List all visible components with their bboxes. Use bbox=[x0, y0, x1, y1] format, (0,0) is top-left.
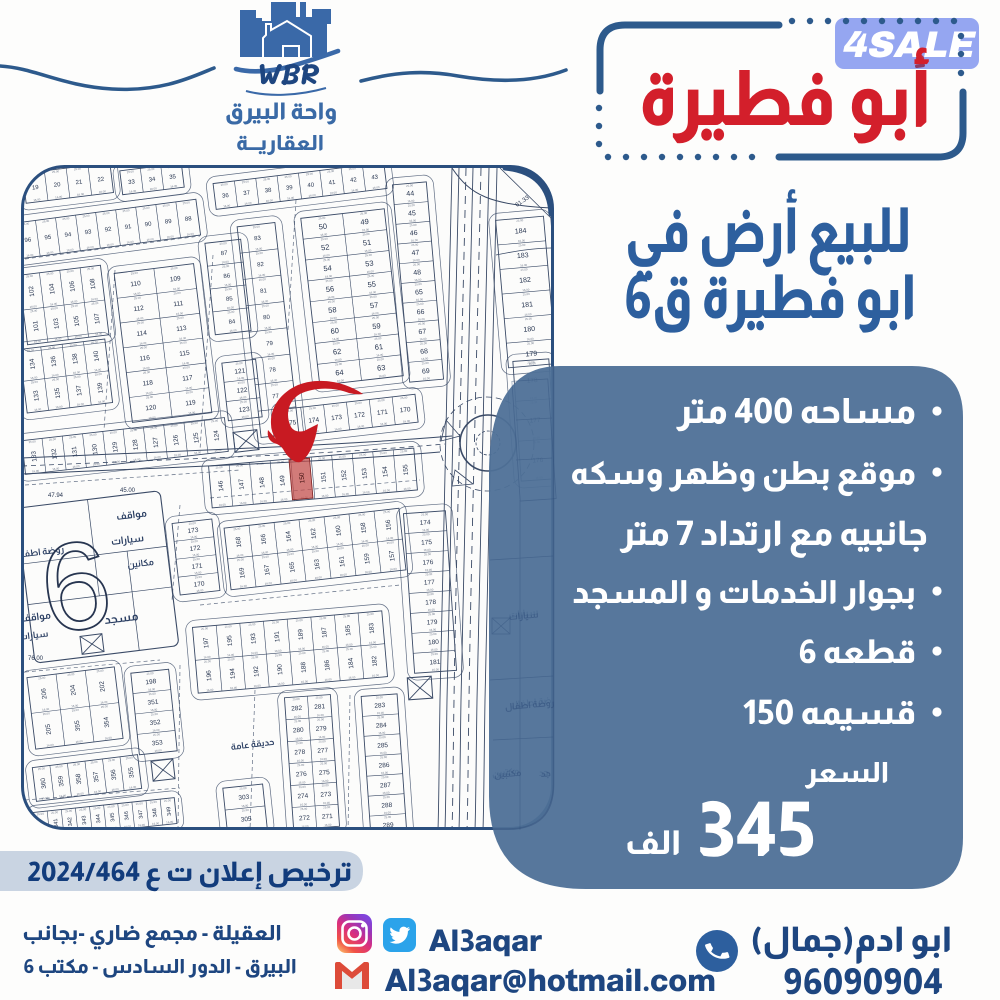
svg-text:16.00: 16.00 bbox=[348, 675, 356, 680]
svg-text:173: 173 bbox=[331, 414, 343, 422]
svg-text:25.00: 25.00 bbox=[523, 292, 531, 297]
svg-text:25.00: 25.00 bbox=[377, 398, 385, 403]
svg-text:25.00: 25.00 bbox=[323, 805, 331, 810]
svg-text:303: 303 bbox=[238, 794, 250, 802]
svg-text:16.00: 16.00 bbox=[403, 419, 411, 424]
svg-text:184: 184 bbox=[515, 228, 527, 236]
svg-text:25.00: 25.00 bbox=[374, 336, 382, 341]
svg-text:25.00: 25.00 bbox=[201, 626, 209, 631]
svg-text:25.00: 25.00 bbox=[287, 552, 295, 557]
svg-text:105: 105 bbox=[73, 315, 81, 327]
svg-text:205: 205 bbox=[45, 723, 53, 735]
svg-text:25.00: 25.00 bbox=[359, 452, 367, 457]
svg-text:103: 103 bbox=[53, 317, 61, 329]
svg-text:25.00: 25.00 bbox=[332, 341, 340, 346]
svg-text:134: 134 bbox=[29, 358, 37, 370]
svg-text:25.00: 25.00 bbox=[233, 526, 241, 531]
svg-text:155: 155 bbox=[402, 464, 410, 476]
svg-text:276: 276 bbox=[296, 771, 308, 779]
svg-text:195: 195 bbox=[226, 635, 234, 647]
svg-text:179: 179 bbox=[426, 619, 438, 627]
svg-text:192: 192 bbox=[253, 665, 261, 677]
svg-text:25.00: 25.00 bbox=[237, 380, 245, 385]
svg-text:25.00: 25.00 bbox=[49, 437, 57, 442]
svg-text:49: 49 bbox=[360, 217, 369, 227]
svg-text:149: 149 bbox=[279, 475, 287, 487]
svg-text:160: 160 bbox=[335, 525, 343, 537]
svg-text:25.00: 25.00 bbox=[153, 732, 161, 737]
svg-text:25.00: 25.00 bbox=[258, 524, 266, 529]
svg-text:25.00: 25.00 bbox=[130, 428, 138, 433]
svg-text:132: 132 bbox=[51, 448, 59, 460]
svg-text:117: 117 bbox=[182, 374, 194, 382]
svg-text:25.00: 25.00 bbox=[362, 543, 370, 548]
svg-text:16.00: 16.00 bbox=[423, 376, 431, 381]
svg-text:25.00: 25.00 bbox=[271, 382, 279, 387]
svg-text:16.00: 16.00 bbox=[32, 469, 40, 474]
svg-text:101: 101 bbox=[32, 320, 40, 332]
svg-text:279: 279 bbox=[316, 725, 328, 733]
svg-text:63: 63 bbox=[377, 363, 386, 373]
svg-text:25.00: 25.00 bbox=[362, 232, 370, 237]
svg-text:16.00: 16.00 bbox=[239, 501, 247, 506]
svg-text:67: 67 bbox=[418, 328, 426, 336]
svg-text:181: 181 bbox=[521, 301, 533, 309]
svg-text:16.00: 16.00 bbox=[372, 673, 380, 678]
svg-text:16.00: 16.00 bbox=[362, 490, 370, 495]
svg-text:171: 171 bbox=[377, 409, 389, 417]
svg-text:275: 275 bbox=[319, 769, 331, 777]
svg-text:48: 48 bbox=[413, 269, 421, 277]
svg-text:25.00: 25.00 bbox=[420, 341, 428, 346]
svg-text:118: 118 bbox=[142, 379, 154, 387]
svg-text:135: 135 bbox=[54, 387, 62, 399]
svg-text:119: 119 bbox=[185, 399, 197, 407]
svg-text:25.00: 25.00 bbox=[343, 614, 351, 619]
svg-text:44: 44 bbox=[406, 190, 414, 198]
svg-text:25.00: 25.00 bbox=[372, 315, 380, 320]
svg-text:25.00: 25.00 bbox=[300, 807, 308, 812]
svg-text:16.00: 16.00 bbox=[403, 486, 411, 491]
svg-text:53: 53 bbox=[365, 259, 374, 269]
svg-text:16.00: 16.00 bbox=[206, 688, 214, 693]
svg-text:16.00: 16.00 bbox=[229, 328, 237, 333]
svg-text:171: 171 bbox=[191, 563, 203, 571]
svg-text:16.00: 16.00 bbox=[277, 681, 285, 686]
svg-text:16.00: 16.00 bbox=[214, 448, 222, 453]
svg-text:349: 349 bbox=[166, 806, 173, 816]
svg-text:25.00: 25.00 bbox=[89, 432, 97, 437]
svg-text:57: 57 bbox=[369, 300, 378, 310]
svg-text:47.94: 47.94 bbox=[48, 493, 64, 499]
svg-text:25.00: 25.00 bbox=[360, 211, 368, 216]
svg-text:62: 62 bbox=[332, 347, 341, 357]
svg-text:355: 355 bbox=[74, 720, 82, 732]
svg-text:25.00: 25.00 bbox=[294, 719, 302, 724]
svg-text:140: 140 bbox=[93, 350, 101, 362]
svg-text:127: 127 bbox=[152, 436, 160, 448]
svg-text:25.00: 25.00 bbox=[193, 557, 201, 562]
svg-text:25.00: 25.00 bbox=[268, 356, 276, 361]
svg-text:25.00: 25.00 bbox=[69, 435, 77, 440]
svg-text:25.00: 25.00 bbox=[354, 401, 362, 406]
svg-text:25.00: 25.00 bbox=[299, 785, 307, 790]
svg-text:25.00: 25.00 bbox=[150, 425, 158, 430]
svg-text:181: 181 bbox=[429, 659, 441, 667]
svg-text:102: 102 bbox=[28, 285, 36, 297]
svg-text:25.00: 25.00 bbox=[109, 430, 117, 435]
svg-text:107: 107 bbox=[93, 312, 101, 324]
svg-text:175: 175 bbox=[421, 539, 433, 547]
svg-text:16.00: 16.00 bbox=[357, 424, 365, 429]
svg-text:147: 147 bbox=[238, 478, 246, 490]
svg-text:168: 168 bbox=[235, 536, 243, 548]
svg-text:25.00: 25.00 bbox=[318, 739, 326, 744]
svg-text:123: 123 bbox=[238, 406, 250, 414]
svg-text:25.00: 25.00 bbox=[148, 691, 156, 696]
svg-text:112: 112 bbox=[133, 305, 145, 313]
svg-text:16.00: 16.00 bbox=[280, 497, 288, 502]
svg-text:356: 356 bbox=[110, 768, 118, 780]
svg-text:189: 189 bbox=[297, 628, 305, 640]
svg-text:164: 164 bbox=[285, 530, 293, 542]
svg-text:25.00: 25.00 bbox=[259, 277, 267, 282]
svg-text:25.00: 25.00 bbox=[428, 612, 436, 617]
svg-text:16.00: 16.00 bbox=[383, 488, 391, 493]
svg-text:25.00: 25.00 bbox=[367, 274, 375, 279]
svg-text:25.00: 25.00 bbox=[527, 341, 535, 346]
svg-text:25.00: 25.00 bbox=[333, 515, 341, 520]
svg-text:25.00: 25.00 bbox=[28, 439, 36, 444]
svg-text:170: 170 bbox=[193, 580, 205, 588]
svg-text:25.00: 25.00 bbox=[383, 509, 391, 514]
svg-text:115: 115 bbox=[179, 350, 191, 358]
svg-text:64: 64 bbox=[335, 368, 344, 378]
svg-text:25.00: 25.00 bbox=[283, 521, 291, 526]
svg-text:25.00: 25.00 bbox=[225, 287, 233, 292]
svg-text:206: 206 bbox=[40, 687, 48, 699]
svg-text:25.00: 25.00 bbox=[335, 362, 343, 367]
svg-text:25.00: 25.00 bbox=[429, 632, 437, 637]
svg-text:68: 68 bbox=[420, 348, 428, 356]
svg-text:16.00: 16.00 bbox=[315, 575, 323, 580]
svg-text:51: 51 bbox=[362, 238, 371, 248]
svg-text:16.00: 16.00 bbox=[153, 455, 161, 460]
svg-text:186: 186 bbox=[324, 659, 332, 671]
svg-text:272: 272 bbox=[299, 815, 311, 823]
svg-text:54: 54 bbox=[323, 263, 332, 273]
svg-text:183: 183 bbox=[368, 622, 376, 634]
svg-text:166: 166 bbox=[260, 533, 268, 545]
svg-text:25.00: 25.00 bbox=[338, 454, 346, 459]
svg-text:25.00: 25.00 bbox=[376, 695, 384, 700]
svg-text:137: 137 bbox=[75, 384, 83, 396]
svg-text:133: 133 bbox=[30, 450, 38, 462]
svg-text:122: 122 bbox=[236, 387, 248, 395]
svg-text:25.00: 25.00 bbox=[421, 361, 429, 366]
svg-text:288: 288 bbox=[381, 802, 393, 810]
svg-text:25.00: 25.00 bbox=[318, 216, 326, 221]
svg-text:25.00: 25.00 bbox=[256, 251, 264, 256]
svg-text:359: 359 bbox=[57, 775, 65, 787]
svg-text:16.00: 16.00 bbox=[378, 373, 386, 378]
svg-text:25.00: 25.00 bbox=[320, 761, 328, 766]
svg-text:191: 191 bbox=[274, 630, 282, 642]
svg-text:345: 345 bbox=[110, 812, 117, 822]
svg-text:25.00: 25.00 bbox=[65, 809, 73, 814]
svg-text:351: 351 bbox=[147, 699, 159, 707]
svg-text:25.00: 25.00 bbox=[170, 423, 178, 428]
svg-text:25.00: 25.00 bbox=[121, 803, 129, 808]
svg-text:25.00: 25.00 bbox=[312, 549, 320, 554]
svg-text:25.00: 25.00 bbox=[296, 741, 304, 746]
svg-text:25.00: 25.00 bbox=[322, 783, 330, 788]
svg-text:25.00: 25.00 bbox=[309, 406, 317, 411]
svg-text:163: 163 bbox=[313, 558, 321, 570]
svg-text:184: 184 bbox=[347, 657, 355, 669]
svg-text:151: 151 bbox=[320, 471, 328, 483]
svg-text:138: 138 bbox=[71, 353, 79, 365]
svg-text:47: 47 bbox=[411, 250, 419, 258]
svg-text:25.00: 25.00 bbox=[323, 257, 331, 262]
svg-text:16.00: 16.00 bbox=[334, 427, 342, 432]
svg-text:25.00: 25.00 bbox=[262, 554, 270, 559]
svg-text:60: 60 bbox=[330, 326, 339, 336]
svg-text:25.00: 25.00 bbox=[358, 512, 366, 517]
svg-text:58: 58 bbox=[328, 305, 337, 315]
svg-text:16.00: 16.00 bbox=[260, 499, 268, 504]
svg-text:16.00: 16.00 bbox=[240, 584, 248, 589]
svg-text:25.00: 25.00 bbox=[527, 360, 535, 365]
svg-text:25.00: 25.00 bbox=[518, 243, 526, 248]
svg-text:169: 169 bbox=[239, 567, 247, 579]
svg-text:25.00: 25.00 bbox=[422, 532, 430, 537]
svg-text:25.00: 25.00 bbox=[369, 645, 377, 650]
svg-text:25.00: 25.00 bbox=[380, 451, 388, 456]
svg-text:69: 69 bbox=[422, 368, 430, 376]
svg-text:344: 344 bbox=[95, 814, 102, 824]
svg-text:16.00: 16.00 bbox=[241, 414, 249, 419]
svg-text:180: 180 bbox=[428, 639, 440, 647]
svg-text:25.00: 25.00 bbox=[328, 299, 336, 304]
svg-text:25.00: 25.00 bbox=[416, 302, 424, 307]
svg-text:193: 193 bbox=[250, 633, 258, 645]
svg-text:25.00: 25.00 bbox=[224, 624, 232, 629]
svg-text:25.00: 25.00 bbox=[277, 460, 285, 465]
svg-text:50: 50 bbox=[318, 222, 327, 232]
svg-text:180: 180 bbox=[523, 326, 535, 334]
svg-text:108: 108 bbox=[89, 278, 97, 290]
svg-text:25.00: 25.00 bbox=[262, 303, 270, 308]
svg-text:16.00: 16.00 bbox=[265, 581, 273, 586]
svg-text:16.00: 16.00 bbox=[337, 378, 345, 383]
svg-text:172: 172 bbox=[189, 545, 201, 553]
svg-text:25.00: 25.00 bbox=[242, 808, 250, 813]
svg-text:25.00: 25.00 bbox=[37, 812, 45, 817]
svg-text:25.00: 25.00 bbox=[298, 651, 306, 656]
svg-text:150: 150 bbox=[299, 472, 307, 484]
svg-text:25.00: 25.00 bbox=[520, 267, 528, 272]
svg-text:16.00: 16.00 bbox=[365, 569, 373, 574]
svg-text:25.00: 25.00 bbox=[381, 775, 389, 780]
svg-text:25.00: 25.00 bbox=[427, 592, 435, 597]
svg-text:25.00: 25.00 bbox=[236, 463, 244, 468]
svg-text:25.00: 25.00 bbox=[297, 763, 305, 768]
svg-text:25.00: 25.00 bbox=[188, 521, 196, 526]
svg-text:16.00: 16.00 bbox=[290, 578, 298, 583]
svg-text:179: 179 bbox=[525, 350, 537, 358]
svg-text:154: 154 bbox=[382, 466, 390, 478]
svg-text:194: 194 bbox=[229, 667, 237, 679]
svg-text:25.00: 25.00 bbox=[366, 612, 374, 617]
svg-text:16.00: 16.00 bbox=[321, 493, 329, 498]
svg-text:177: 177 bbox=[424, 579, 436, 587]
svg-text:133: 133 bbox=[33, 390, 41, 402]
svg-text:283: 283 bbox=[374, 702, 386, 710]
svg-text:52: 52 bbox=[321, 242, 330, 252]
svg-text:56: 56 bbox=[325, 284, 334, 294]
svg-text:278: 278 bbox=[294, 749, 306, 757]
svg-text:273: 273 bbox=[320, 791, 332, 799]
svg-text:129: 129 bbox=[112, 441, 120, 453]
svg-text:16.00: 16.00 bbox=[342, 492, 350, 497]
svg-text:25.00: 25.00 bbox=[383, 795, 391, 800]
svg-text:25.00: 25.00 bbox=[413, 262, 421, 267]
svg-text:121: 121 bbox=[234, 367, 246, 375]
svg-text:120: 120 bbox=[145, 404, 157, 412]
svg-text:109: 109 bbox=[170, 275, 182, 283]
svg-text:25.00: 25.00 bbox=[164, 798, 172, 803]
svg-text:45.00: 45.00 bbox=[120, 488, 136, 494]
svg-text:190: 190 bbox=[276, 663, 284, 675]
svg-text:346: 346 bbox=[124, 811, 131, 821]
svg-text:25.00: 25.00 bbox=[424, 552, 432, 557]
svg-text:161: 161 bbox=[338, 555, 346, 567]
svg-text:25.00: 25.00 bbox=[151, 712, 159, 717]
svg-text:157: 157 bbox=[388, 550, 396, 562]
svg-text:25.00: 25.00 bbox=[425, 572, 433, 577]
svg-text:25.00: 25.00 bbox=[378, 735, 386, 740]
svg-text:354: 354 bbox=[103, 716, 111, 728]
svg-text:45: 45 bbox=[408, 210, 416, 218]
svg-text:176: 176 bbox=[422, 559, 434, 567]
svg-text:65: 65 bbox=[415, 289, 423, 297]
svg-text:355: 355 bbox=[127, 766, 135, 778]
svg-text:66: 66 bbox=[416, 309, 424, 317]
svg-text:25.00: 25.00 bbox=[195, 575, 203, 580]
svg-text:25.00: 25.00 bbox=[93, 806, 101, 811]
svg-text:16.00: 16.00 bbox=[174, 452, 182, 457]
svg-text:204: 204 bbox=[69, 684, 77, 696]
svg-text:25.00: 25.00 bbox=[406, 183, 414, 188]
svg-text:277: 277 bbox=[317, 747, 329, 755]
svg-text:114: 114 bbox=[136, 330, 148, 338]
svg-text:25.00: 25.00 bbox=[380, 755, 388, 760]
svg-text:178: 178 bbox=[425, 599, 437, 607]
svg-text:25.00: 25.00 bbox=[516, 218, 524, 223]
svg-text:25.00: 25.00 bbox=[336, 546, 344, 551]
svg-text:25.00: 25.00 bbox=[369, 294, 377, 299]
svg-text:146: 146 bbox=[217, 480, 225, 492]
svg-text:284: 284 bbox=[376, 722, 388, 730]
svg-text:202: 202 bbox=[99, 680, 107, 692]
svg-text:25.00: 25.00 bbox=[248, 622, 256, 627]
svg-text:25.00: 25.00 bbox=[227, 657, 235, 662]
svg-text:274: 274 bbox=[297, 793, 309, 801]
svg-text:25.00: 25.00 bbox=[265, 330, 273, 335]
svg-text:25.00: 25.00 bbox=[296, 618, 304, 623]
svg-text:25.00: 25.00 bbox=[240, 399, 248, 404]
svg-text:16.00: 16.00 bbox=[52, 466, 60, 471]
svg-text:25.00: 25.00 bbox=[409, 223, 417, 228]
svg-text:113: 113 bbox=[176, 325, 188, 333]
svg-text:61: 61 bbox=[374, 342, 383, 352]
svg-text:159: 159 bbox=[363, 552, 371, 564]
svg-text:170: 170 bbox=[399, 406, 411, 414]
svg-text:46: 46 bbox=[410, 230, 418, 238]
svg-text:76.00: 76.00 bbox=[28, 656, 44, 662]
svg-text:25.00: 25.00 bbox=[235, 361, 243, 366]
svg-text:198: 198 bbox=[145, 678, 157, 686]
svg-text:136: 136 bbox=[50, 355, 58, 367]
svg-text:16.00: 16.00 bbox=[196, 588, 204, 593]
svg-text:25.00: 25.00 bbox=[275, 653, 283, 658]
svg-text:25.00: 25.00 bbox=[191, 539, 199, 544]
svg-text:16.00: 16.00 bbox=[380, 421, 388, 426]
svg-text:16.00: 16.00 bbox=[389, 567, 397, 572]
svg-text:25.00: 25.00 bbox=[251, 655, 259, 660]
svg-text:16.00: 16.00 bbox=[339, 572, 347, 577]
svg-text:130: 130 bbox=[91, 443, 99, 455]
svg-text:280: 280 bbox=[293, 727, 305, 735]
svg-text:124: 124 bbox=[213, 429, 221, 441]
svg-text:25.00: 25.00 bbox=[322, 649, 330, 654]
svg-text:25.00: 25.00 bbox=[418, 321, 426, 326]
svg-text:182: 182 bbox=[371, 655, 379, 667]
svg-text:25.00: 25.00 bbox=[411, 242, 419, 247]
svg-text:25.00: 25.00 bbox=[239, 786, 247, 791]
svg-text:158: 158 bbox=[360, 522, 368, 534]
svg-text:25.00: 25.00 bbox=[421, 512, 429, 517]
svg-text:353: 353 bbox=[152, 739, 164, 747]
svg-text:25.00: 25.00 bbox=[191, 421, 199, 426]
svg-text:16.00: 16.00 bbox=[138, 823, 146, 828]
svg-text:25.00: 25.00 bbox=[386, 540, 394, 545]
svg-text:153: 153 bbox=[361, 467, 369, 479]
svg-text:187: 187 bbox=[321, 626, 329, 638]
svg-text:25.00: 25.00 bbox=[377, 357, 385, 362]
svg-text:282: 282 bbox=[291, 705, 303, 713]
svg-text:25.00: 25.00 bbox=[325, 278, 333, 283]
svg-text:25.00: 25.00 bbox=[150, 800, 158, 805]
svg-text:357: 357 bbox=[92, 771, 100, 783]
svg-text:25.00: 25.00 bbox=[319, 616, 327, 621]
svg-text:25.00: 25.00 bbox=[222, 264, 230, 269]
svg-text:16.00: 16.00 bbox=[432, 667, 440, 672]
svg-text:25.00: 25.00 bbox=[253, 224, 261, 229]
svg-text:182: 182 bbox=[519, 277, 531, 285]
svg-text:25.00: 25.00 bbox=[400, 449, 408, 454]
svg-text:106: 106 bbox=[69, 280, 77, 292]
svg-text:128: 128 bbox=[132, 439, 140, 451]
svg-text:25.00: 25.00 bbox=[321, 237, 329, 242]
svg-text:196: 196 bbox=[205, 670, 213, 682]
svg-text:185: 185 bbox=[345, 624, 353, 636]
svg-text:16.00: 16.00 bbox=[219, 502, 227, 507]
svg-text:25.00: 25.00 bbox=[315, 695, 323, 700]
svg-text:271: 271 bbox=[322, 813, 334, 821]
svg-text:25.00: 25.00 bbox=[384, 815, 392, 820]
